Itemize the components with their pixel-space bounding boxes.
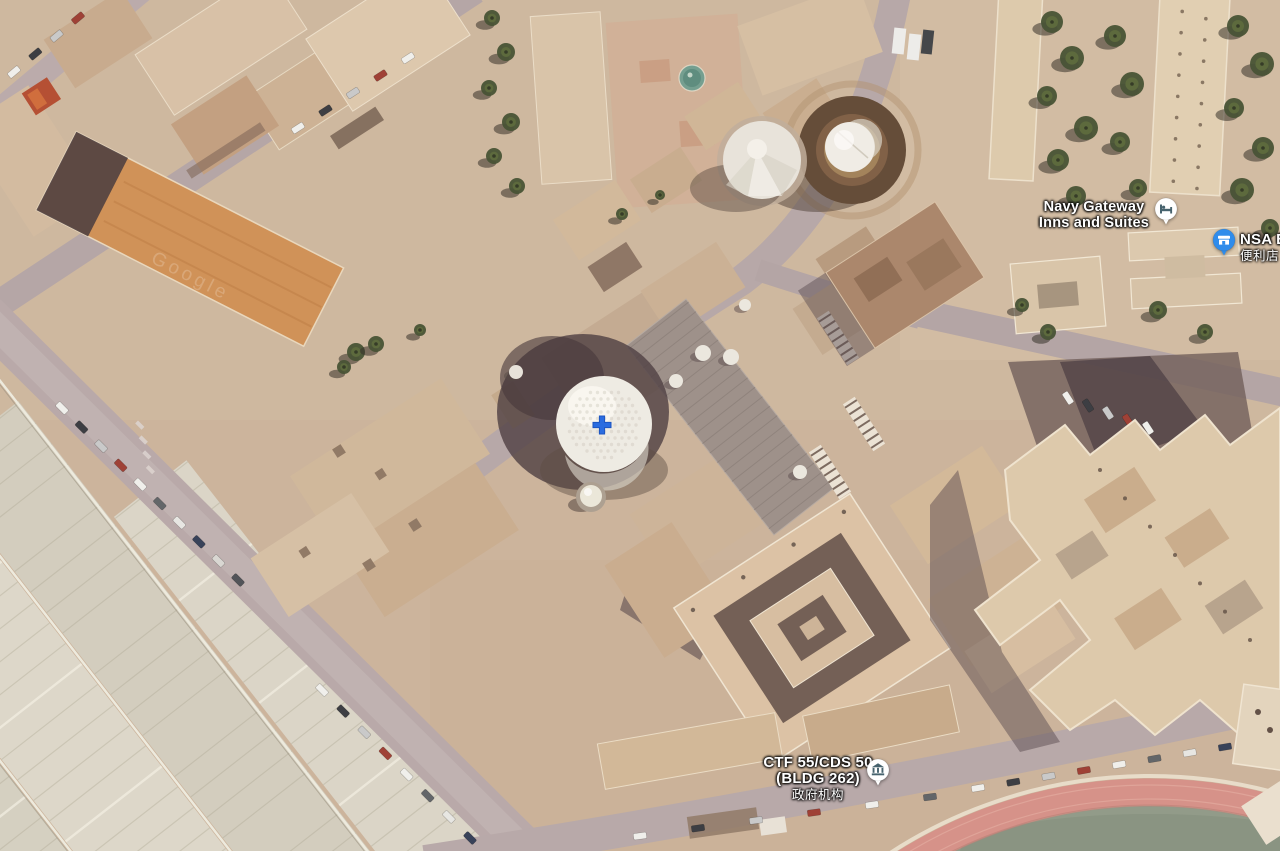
poi-label-line: Inns and Suites	[1039, 215, 1149, 231]
map-center-marker	[592, 415, 612, 435]
poi-label-line: 便利店	[1240, 248, 1280, 264]
poi-label-line: (BLDG 262)	[763, 771, 872, 787]
poi-label-line: NSA B	[1240, 232, 1280, 248]
poi-label-line: CTF 55/CDS 50	[763, 755, 872, 771]
government-pin[interactable]	[865, 757, 891, 789]
poi-label-line: 政府机构	[763, 787, 872, 803]
poi-label-ctf[interactable]: CTF 55/CDS 50 (BLDG 262) 政府机构	[763, 755, 872, 803]
color-cast-overlay	[0, 0, 1280, 851]
poi-label-nsa-store[interactable]: NSA B 便利店	[1240, 232, 1280, 264]
store-pin[interactable]	[1211, 227, 1237, 259]
satellite-imagery: Google	[0, 0, 1280, 851]
poi-label-navy-gateway[interactable]: Navy Gateway Inns and Suites	[1039, 199, 1149, 231]
poi-label-line: Navy Gateway	[1039, 199, 1149, 215]
lodging-pin[interactable]	[1153, 196, 1179, 228]
store-icon	[1218, 236, 1230, 245]
satellite-map-stage[interactable]: Google Navy Gateway Inns and Suites NSA …	[0, 0, 1280, 851]
